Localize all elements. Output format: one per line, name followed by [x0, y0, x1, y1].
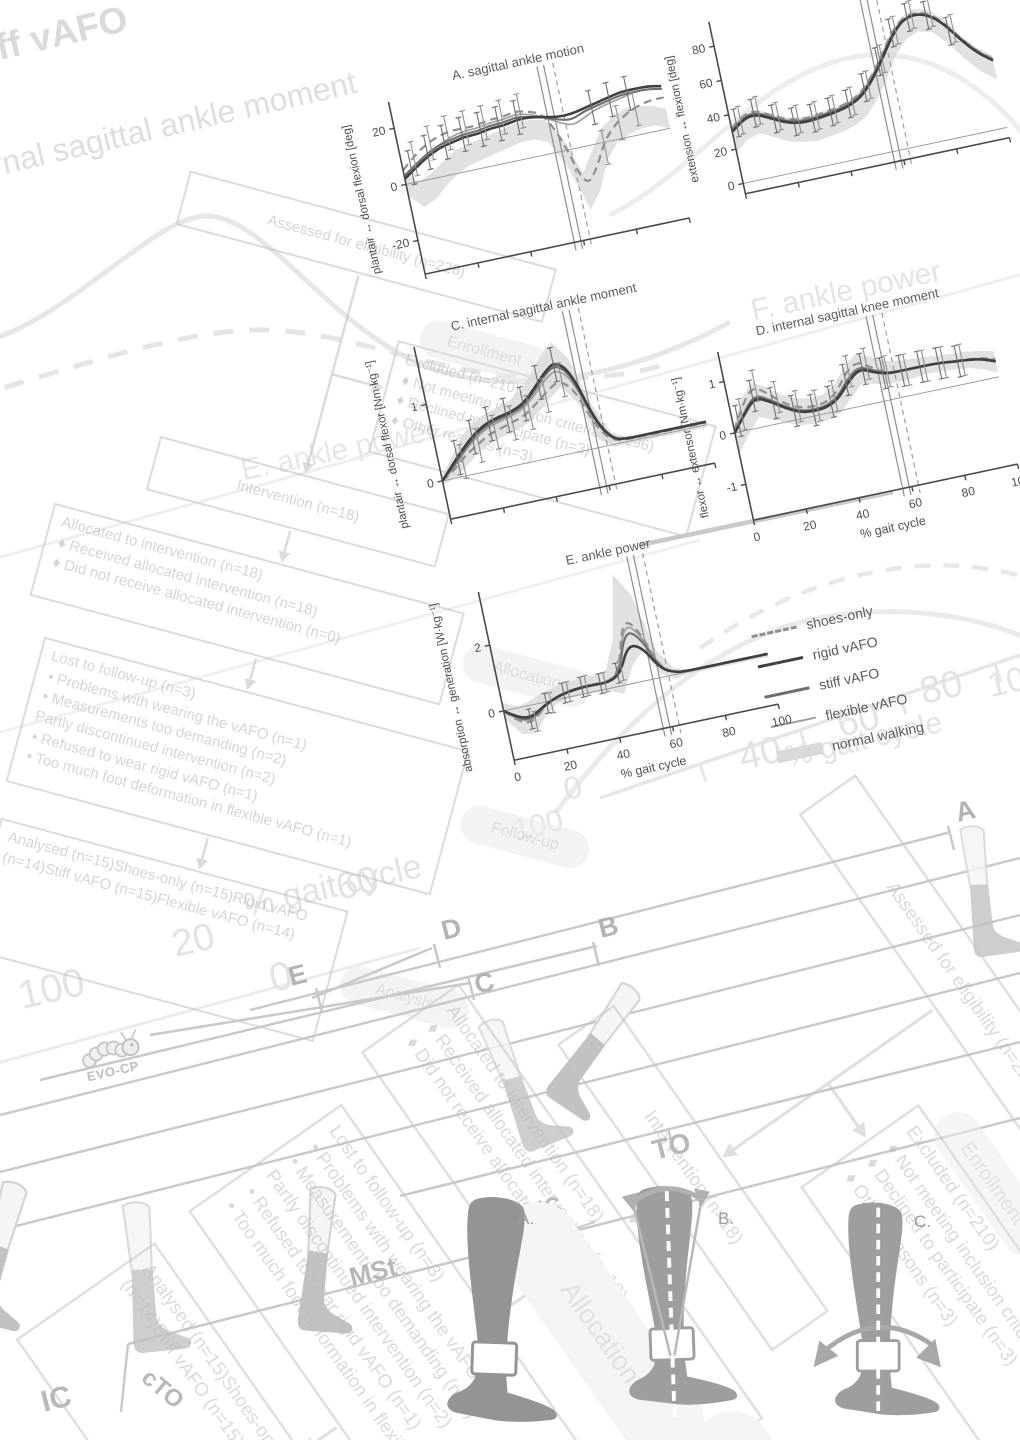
svg-text:0: 0 [726, 178, 736, 193]
legend-label: flexible vAFO [824, 690, 909, 723]
svg-text:0: 0 [718, 428, 728, 443]
svg-text:-1: -1 [725, 479, 739, 495]
svg-text:80: 80 [960, 484, 976, 501]
event-line-dashed [882, 313, 920, 493]
svg-text:40: 40 [615, 746, 631, 763]
event-line [866, 316, 904, 496]
svg-text:40: 40 [855, 506, 871, 523]
svg-text:20: 20 [562, 757, 578, 774]
ghost-stiff-vafo-text: ff vAFO [0, 0, 132, 69]
svg-text:1: 1 [409, 399, 419, 414]
svg-text:0: 0 [426, 476, 436, 491]
svg-text:1: 1 [707, 377, 717, 392]
svg-text:0: 0 [513, 769, 523, 784]
svg-text:60: 60 [698, 75, 714, 92]
svg-text:20: 20 [802, 517, 818, 534]
svg-text:100: 100 [771, 712, 794, 730]
svg-text:0: 0 [389, 179, 399, 194]
panel-title-D: D. internal sagittal knee moment [754, 285, 940, 339]
svg-text:100: 100 [1010, 472, 1020, 490]
legend-label: shoes-only [805, 603, 875, 633]
event-line [873, 315, 911, 495]
svg-text:40: 40 [705, 110, 721, 127]
chart-panel-B: 020406080B. sagittal ankle motionextensi… [650, 0, 1020, 233]
legend-label: normal walking [830, 719, 925, 754]
svg-text:20: 20 [371, 123, 387, 140]
event-line [569, 310, 608, 494]
band-normal-walking [724, 325, 1003, 453]
panel-title-E: E. ankle power [564, 535, 652, 568]
band-normal-walking [715, 0, 1002, 158]
legend-label: stiff vAFO [818, 665, 881, 693]
tick-A [948, 826, 954, 850]
chart-panel-E: 02020406080100% gait cycleE. ankle power… [420, 515, 811, 841]
panel-title-A: A. sagittal ankle motion [451, 40, 586, 83]
band-normal-walking [481, 546, 774, 739]
gait-figure-collage: ff vAFO rnal sagittal ankle moment E. an… [0, 0, 1020, 1440]
svg-text:-20: -20 [391, 235, 411, 252]
chart-panel-A: -20020A. sagittal ankle motionplantair ↔… [330, 24, 713, 313]
svg-text:60: 60 [907, 495, 923, 512]
svg-text:60: 60 [668, 735, 684, 752]
svg-text:80: 80 [721, 724, 737, 741]
svg-text:20: 20 [713, 144, 729, 161]
svg-text:80: 80 [691, 41, 707, 58]
svg-text:2: 2 [473, 640, 483, 655]
svg-text:0: 0 [487, 706, 497, 721]
panel-title-B: B. sagittal ankle motion [771, 0, 906, 3]
event-line [544, 65, 583, 249]
legend-label: rigid vAFO [811, 633, 879, 662]
